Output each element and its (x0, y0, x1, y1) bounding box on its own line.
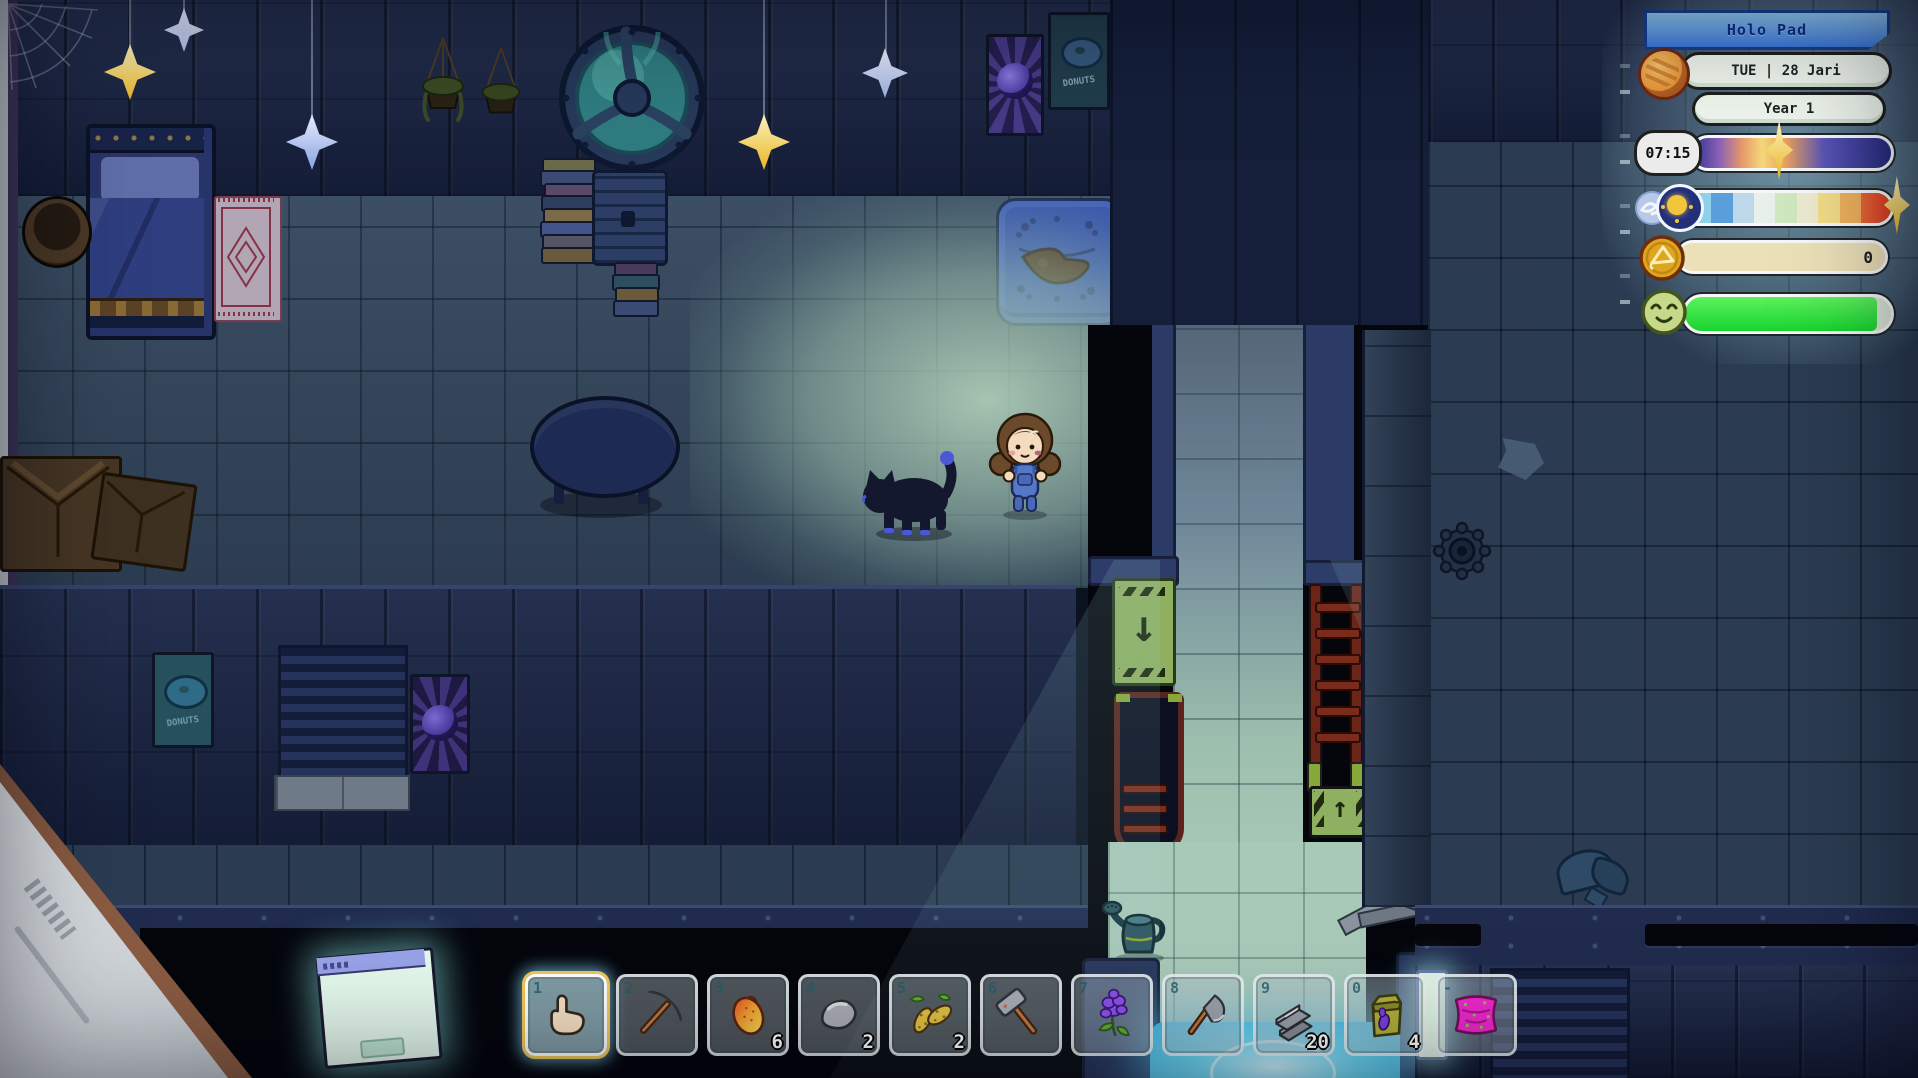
mallet-icon (993, 987, 1049, 1043)
hand-cursor-icon (538, 987, 594, 1043)
ladder-tape (1168, 694, 1182, 702)
ladder-tape (1116, 694, 1130, 702)
book-stack[interactable] (612, 262, 658, 328)
season-segment (1733, 193, 1754, 223)
bed-headboard (90, 128, 204, 153)
ladder-rung (1315, 680, 1361, 691)
watering-can[interactable] (1102, 898, 1172, 964)
star-string (885, 0, 887, 52)
floor-gear-drain (1430, 520, 1494, 582)
storage-chest[interactable] (592, 170, 668, 266)
hanging-plant (418, 38, 468, 138)
table-top (530, 396, 680, 498)
seed-bag-icon (1357, 987, 1413, 1043)
weather-row (1634, 182, 1892, 228)
grub-larva-icon (902, 987, 958, 1043)
mood-bar (1682, 294, 1894, 334)
ladder-rung (1315, 628, 1361, 639)
sun-dot (1661, 205, 1665, 209)
ladder-down-sign: ↓ (1112, 578, 1176, 686)
time-capsule: 07:15 (1634, 130, 1702, 176)
season-segment (1711, 193, 1732, 223)
chest-clasp (621, 211, 635, 227)
sun-core (1667, 195, 1687, 215)
star-string (763, 0, 765, 118)
plant-pot[interactable] (22, 196, 92, 268)
planet-stripes (1645, 57, 1679, 87)
planet-icon (1638, 48, 1690, 100)
donut-hole (179, 686, 189, 693)
currency-bar: 0 (1676, 240, 1888, 274)
star-string (311, 0, 313, 118)
season-segment (1861, 193, 1891, 223)
rug (214, 196, 282, 322)
right-room-left-wall (1362, 330, 1431, 907)
ladder-up[interactable] (1309, 584, 1363, 784)
player-character (986, 408, 1064, 524)
hotbar-slot-3[interactable]: 3 6 (707, 974, 789, 1056)
holo-pad-hud: Holo Pad TUE | 28 Jari Year 1 07:15 (1628, 4, 1898, 344)
poster-donuts-2: DONUTS (152, 652, 214, 748)
ladder-rung (1122, 784, 1168, 794)
daytime-bar (1690, 135, 1894, 171)
laptop[interactable] (315, 947, 442, 1069)
year-text: Year 1 (1764, 101, 1815, 117)
hotbar: 1 2 3 (525, 974, 1517, 1056)
bed-base (90, 316, 204, 328)
hull-seam (13, 925, 90, 1024)
season-segment (1797, 193, 1818, 223)
axe-icon (1175, 987, 1231, 1043)
vent-sill (274, 775, 410, 811)
hazard-stripe (1119, 587, 1165, 596)
poster-donuts-text: DONUTS (158, 714, 209, 731)
lavender-icon (1084, 987, 1140, 1043)
hotbar-slot-7[interactable]: 7 (1071, 974, 1153, 1056)
hotbar-slot-4[interactable]: 4 2 (798, 974, 880, 1056)
season-segment (1818, 193, 1839, 223)
hotbar-slot-9[interactable]: 9 20 (1253, 974, 1335, 1056)
corridor-wall-left (1152, 325, 1176, 560)
up-arrow-glyph: ↑ (1312, 791, 1368, 824)
hotbar-slot-6[interactable]: 6 (980, 974, 1062, 1056)
slot-count: 20 (1306, 1031, 1329, 1053)
hatch-ladder-down[interactable] (1114, 692, 1184, 856)
book-stack[interactable] (540, 158, 598, 262)
hotbar-slot-10[interactable]: 0 4 (1344, 974, 1426, 1056)
sun-dot (1689, 205, 1693, 209)
hotbar-slot-2[interactable]: 2 (616, 974, 698, 1056)
hud-title-banner: Holo Pad (1644, 10, 1890, 50)
poster-donuts: DONUTS (1048, 12, 1110, 110)
bed[interactable] (86, 124, 216, 340)
slot-count: 2 (954, 1031, 965, 1053)
ladder-rung (1315, 706, 1361, 717)
vent-shutter (278, 645, 408, 781)
sun-dot (1675, 219, 1679, 223)
poster-swirl-planet (986, 34, 1044, 136)
down-arrow-glyph: ↓ (1115, 599, 1173, 655)
time-text: 07:15 (1645, 144, 1690, 162)
ladder-rung (1315, 654, 1361, 665)
season-segment (1754, 193, 1775, 223)
slot-count: 4 (1409, 1031, 1420, 1053)
season-bar (1674, 190, 1894, 226)
ladder-rung (1315, 602, 1361, 613)
happy-face-icon (1640, 288, 1688, 336)
sun-icon (1656, 184, 1704, 232)
triangle-coin-icon (1638, 234, 1686, 282)
date-text: TUE | 28 Jari (1731, 63, 1841, 79)
pickaxe-icon (629, 987, 685, 1043)
hud-glitch-pixels (1620, 44, 1630, 304)
slot-count: 6 (772, 1031, 783, 1053)
poster-donuts-text: DONUTS (1055, 74, 1104, 91)
bed-blanket (90, 198, 204, 298)
hanging-plant (478, 48, 524, 140)
star-string (129, 0, 131, 46)
lower-floor-strip (0, 845, 1110, 907)
ladder-rung (1122, 824, 1168, 834)
poster-swirl-planet-2 (410, 674, 470, 774)
season-segment (1840, 193, 1861, 223)
hotbar-slot-11[interactable]: - (1435, 974, 1517, 1056)
hud-title: Holo Pad (1727, 21, 1807, 39)
porthole-window (556, 18, 708, 180)
season-segment (1775, 193, 1796, 223)
footer-groove (1645, 924, 1918, 946)
time-row: 07:15 (1634, 130, 1892, 174)
cardboard-box[interactable] (90, 472, 197, 573)
slot-count: 2 (863, 1031, 874, 1053)
currency-amount: 0 (1863, 248, 1873, 267)
mood-row (1634, 288, 1892, 336)
hotbar-slot-5[interactable]: 5 2 (889, 974, 971, 1056)
cat-bed-pillow[interactable] (996, 198, 1124, 326)
broken-plate-debris (1556, 844, 1642, 906)
mango-icon (720, 987, 776, 1043)
ladder-rung (1122, 804, 1168, 814)
black-cat[interactable] (858, 446, 970, 542)
corridor-wall-right (1303, 325, 1354, 563)
spider-web (8, 0, 100, 92)
hotbar-slot-8[interactable]: 8 (1162, 974, 1244, 1056)
gap-wall-top (1110, 0, 1428, 330)
footer-groove (1415, 924, 1481, 946)
game-viewport: DONUTS (0, 0, 1918, 1078)
pink-pillow-icon (1448, 987, 1504, 1043)
stone-icon (811, 987, 867, 1043)
date-pill: TUE | 28 Jari (1680, 52, 1892, 90)
date-row: TUE | 28 Jari (1634, 48, 1892, 94)
hotbar-slot-1[interactable]: 1 (525, 974, 607, 1056)
book (613, 300, 659, 317)
mood-bar-fill (1685, 297, 1877, 331)
currency-row: 0 (1634, 234, 1892, 282)
laptop-touchpad (360, 1037, 405, 1059)
poster-planet-art (997, 63, 1033, 99)
ladder-rung (1315, 732, 1361, 743)
donut-hole (1075, 47, 1085, 54)
round-table (530, 396, 672, 526)
poster-planet-art (422, 705, 458, 741)
hazard-stripe (1119, 668, 1165, 677)
hull-vent (24, 878, 77, 940)
bed-pillow (98, 154, 202, 204)
year-pill: Year 1 (1692, 92, 1886, 126)
